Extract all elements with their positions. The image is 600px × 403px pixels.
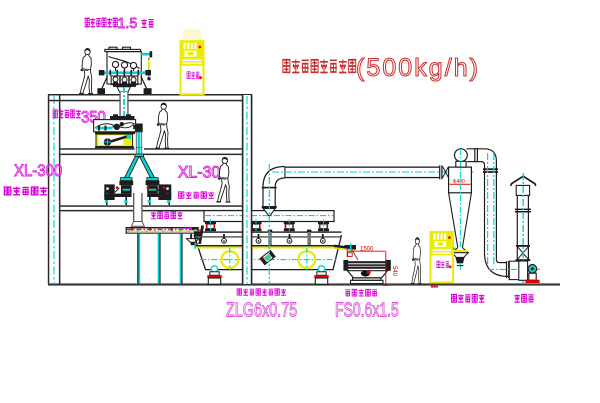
svg-text:Φ400: Φ400 xyxy=(453,179,466,185)
svg-text:ZLG6x0.75: ZLG6x0.75 xyxy=(226,298,297,321)
svg-text:1.5: 1.5 xyxy=(118,15,138,31)
svg-text:(500kg/h): (500kg/h) xyxy=(356,54,478,82)
svg-text:FS0.6x1.5: FS0.6x1.5 xyxy=(335,298,399,321)
svg-text:XL-300: XL-300 xyxy=(14,162,62,180)
svg-text:1500: 1500 xyxy=(360,246,374,252)
svg-text:540: 540 xyxy=(391,266,397,277)
